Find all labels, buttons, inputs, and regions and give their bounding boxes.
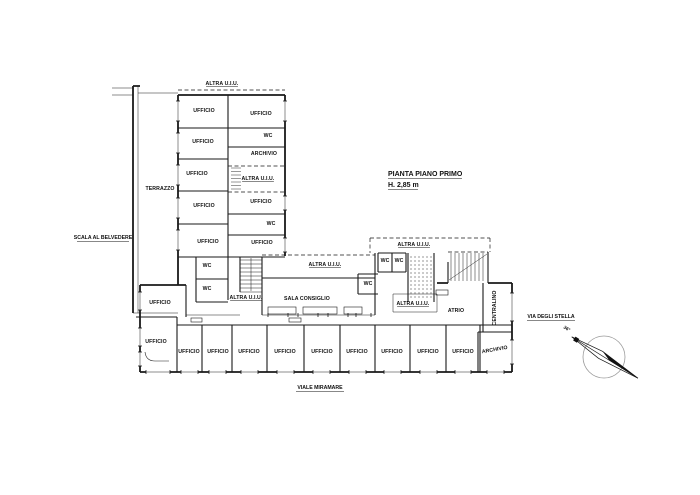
room-label-sala_consiglio: SALA CONSIGLIO (284, 296, 330, 302)
room-label-wc: WC (203, 286, 212, 292)
room-label-ufficio: UFFICIO (346, 349, 367, 355)
room-label-ufficio: UFFICIO (311, 349, 332, 355)
room-label-altra_uiu: ALTRA U.I.U. (206, 81, 239, 87)
room-label-altra_uiu: ALTRA U.I.U. (309, 262, 342, 268)
room-label-terrazzo: TERRAZZO (145, 186, 174, 192)
room-label-ufficio: UFFICIO (145, 339, 166, 345)
room-label-altra_uiu: ALTRA U.I.U. (230, 295, 263, 301)
bottom-street-label: VIALE MIRAMARE (297, 385, 343, 391)
room-label-ufficio: UFFICIO (381, 349, 402, 355)
room-label-ufficio: UFFICIO (178, 349, 199, 355)
plan-height-note: H. 2,85 m (388, 182, 419, 189)
room-label-ufficio: UFFICIO (207, 349, 228, 355)
room-label-ufficio: UFFICIO (193, 108, 214, 114)
room-label-ufficio: UFFICIO (417, 349, 438, 355)
room-label-centralino: CENTRALINO (492, 290, 498, 325)
plan-title: PIANTA PIANO PRIMO (388, 171, 463, 178)
room-label-wc: WC (264, 133, 273, 139)
room-label-ufficio: UFFICIO (238, 349, 259, 355)
room-label-wc: WC (381, 258, 390, 264)
room-label-wc: WC (364, 281, 373, 287)
room-label-ufficio: UFFICIO (452, 349, 473, 355)
room-label-ufficio: UFFICIO (250, 199, 271, 205)
room-label-ufficio: UFFICIO (197, 239, 218, 245)
paper-background (0, 0, 700, 495)
floor-plan-drawing: ALTRA U.I.U.TERRAZZOUFFICIOUFFICIOUFFICI… (0, 0, 700, 495)
room-label-archivio: ARCHIVIO (251, 151, 277, 157)
room-label-wc: WC (395, 258, 404, 264)
room-label-ufficio: UFFICIO (186, 171, 207, 177)
left-street-label: SCALA AL BELVEDERE (74, 235, 133, 241)
room-label-altra_uiu: ALTRA U.I.U. (398, 242, 431, 248)
room-label-ufficio: UFFICIO (250, 111, 271, 117)
room-label-wc: WC (267, 221, 276, 227)
room-label-atrio: ATRIO (448, 308, 464, 314)
room-label-wc: WC (203, 263, 212, 269)
room-label-altra_uiu: ALTRA U.I.U. (242, 176, 275, 182)
room-label-ufficio: UFFICIO (274, 349, 295, 355)
room-label-ufficio: UFFICIO (149, 300, 170, 306)
right-street-label: VIA DEGLI STELLA (527, 314, 575, 320)
room-label-altra_uiu: ALTRA U.I.U. (397, 301, 430, 307)
room-label-ufficio: UFFICIO (193, 203, 214, 209)
room-label-ufficio: UFFICIO (192, 139, 213, 145)
room-label-ufficio: UFFICIO (251, 240, 272, 246)
